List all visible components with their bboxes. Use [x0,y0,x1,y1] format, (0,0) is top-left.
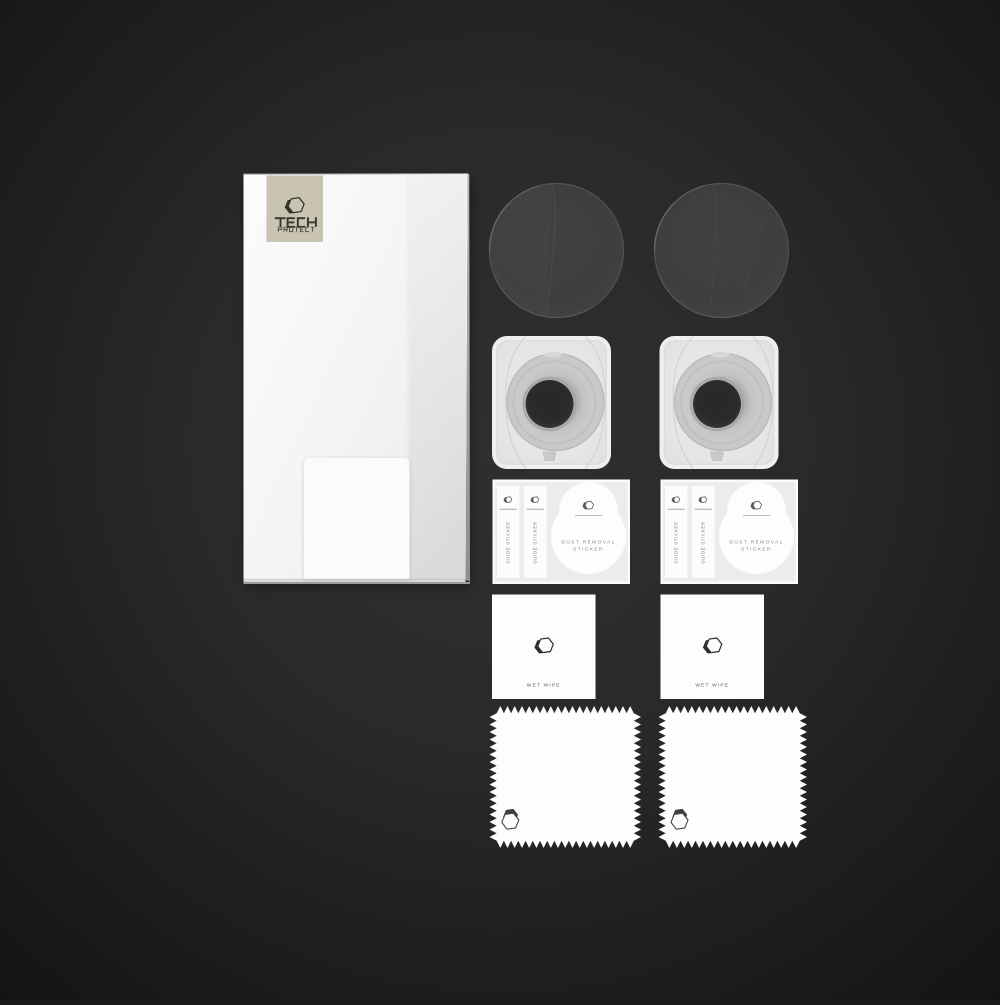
svg-text:GUIDE STICKER: GUIDE STICKER [674,521,679,564]
svg-text:GUIDE STICKER: GUIDE STICKER [533,521,538,564]
svg-text:WET WIPE: WET WIPE [527,683,561,689]
svg-text:DUST REMOVAL: DUST REMOVAL [561,540,615,546]
svg-text:STICKER: STICKER [741,547,772,553]
svg-text:WET WIPE: WET WIPE [695,683,729,689]
svg-text:GUIDE STICKER: GUIDE STICKER [701,521,706,564]
svg-text:DUST REMOVAL: DUST REMOVAL [729,540,783,546]
svg-text:STICKER: STICKER [573,547,604,553]
svg-text:GUIDE STICKER: GUIDE STICKER [506,521,511,564]
